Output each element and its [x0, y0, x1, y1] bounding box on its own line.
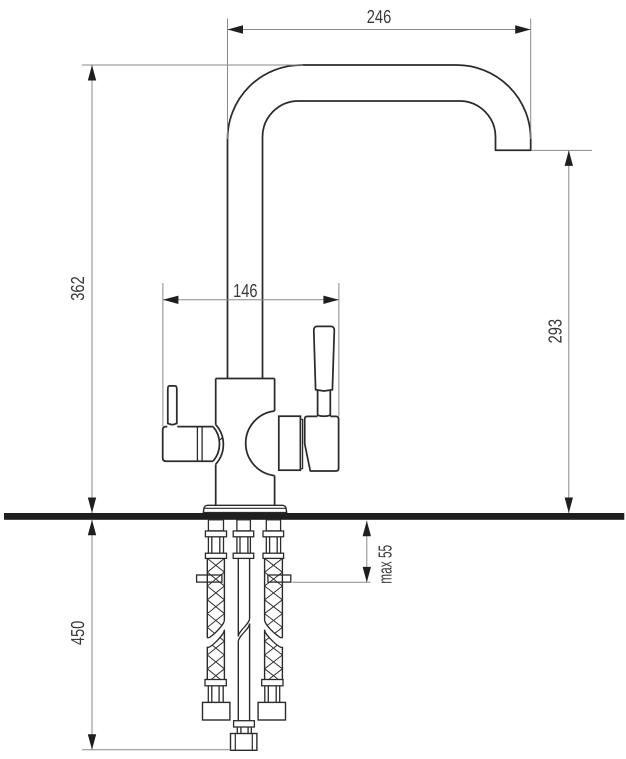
- svg-text:max 55: max 55: [374, 545, 395, 584]
- svg-text:246: 246: [367, 6, 391, 27]
- svg-text:450: 450: [67, 621, 88, 645]
- svg-text:146: 146: [233, 280, 257, 301]
- svg-text:362: 362: [67, 276, 88, 300]
- svg-text:293: 293: [545, 319, 566, 343]
